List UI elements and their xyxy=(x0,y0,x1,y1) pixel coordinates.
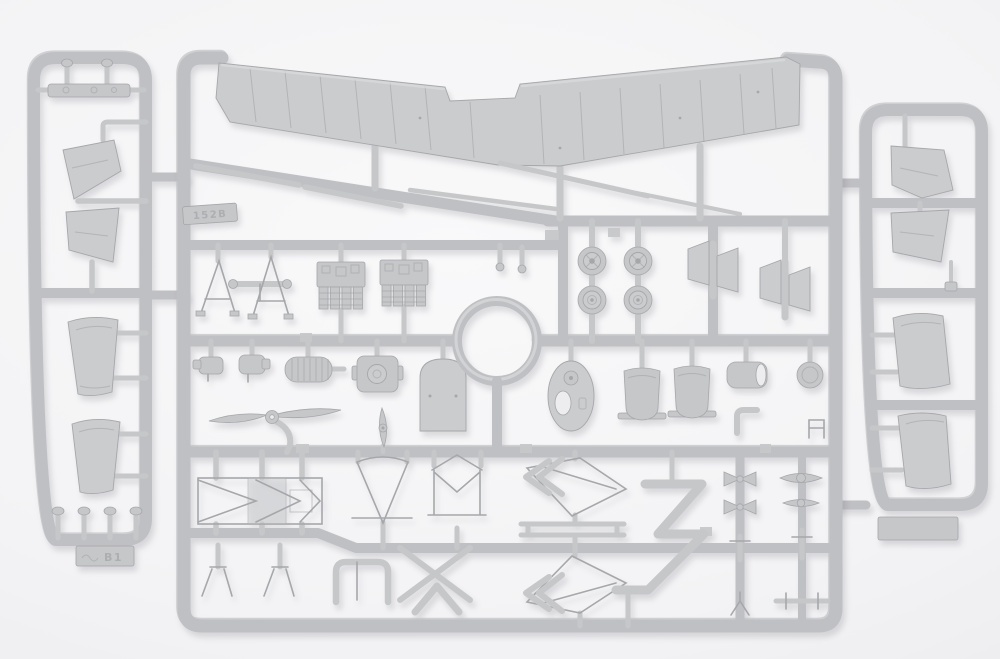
wing-hole xyxy=(757,91,760,94)
spoked-wheel xyxy=(578,221,606,288)
engine-cylinder-bank xyxy=(317,245,365,341)
main-sprue-marking-tab: 152B xyxy=(182,203,237,225)
wing-tip-section xyxy=(872,313,950,388)
mushroom-pin xyxy=(102,59,113,86)
right-sprue-blank-tab xyxy=(878,517,958,540)
bucket-seat xyxy=(618,341,666,420)
zigzag-exhaust-manifold xyxy=(616,452,704,626)
mushroom-pin xyxy=(62,59,73,86)
tail-fin-panel xyxy=(891,116,953,198)
control-horn-pin xyxy=(264,545,294,596)
wing-tip-section xyxy=(72,419,146,493)
gate-block xyxy=(300,333,312,342)
gate-block xyxy=(545,230,559,240)
ribbed-fuel-tank xyxy=(285,341,344,382)
t-bracket xyxy=(336,562,388,602)
strut-panel-set xyxy=(688,241,738,296)
right-sprue xyxy=(836,108,982,540)
triangular-frame xyxy=(352,452,412,548)
bucket-seat xyxy=(668,341,716,418)
carburetor-fitting xyxy=(193,341,223,381)
wing-hole xyxy=(419,117,422,120)
tail-fin-panel xyxy=(891,203,949,262)
exhaust-sleeve xyxy=(727,341,767,388)
fuselage-side-frame xyxy=(198,452,322,533)
wing-hole xyxy=(679,117,682,120)
left-tab-text: B1 xyxy=(104,551,123,564)
model-kit-sprues-photo: B1 xyxy=(0,0,1000,659)
landing-gear-vee-struts xyxy=(400,548,470,612)
gable-frame xyxy=(428,452,486,548)
hinge-bar-part xyxy=(38,84,144,97)
gate-block xyxy=(296,444,309,453)
gate-block xyxy=(760,444,771,453)
sprues-drawing: B1 xyxy=(0,0,1000,659)
mini-propeller-fitting xyxy=(780,474,822,483)
round-cap xyxy=(797,341,823,388)
cowling-ring xyxy=(456,300,537,453)
gate-block xyxy=(520,444,532,453)
carburetor-fitting xyxy=(239,341,270,382)
tail-skid-rod xyxy=(642,194,740,214)
wing-tip-section xyxy=(872,413,951,489)
spoked-wheel xyxy=(624,221,652,288)
disc-wheel xyxy=(578,286,606,341)
upper-wing-part xyxy=(216,57,800,218)
main-sprue: 152B xyxy=(182,56,836,626)
disc-wheel xyxy=(624,286,652,341)
mini-propeller-fitting xyxy=(783,499,819,507)
engine-crankcase xyxy=(352,341,403,392)
strut-panel-set xyxy=(760,221,810,317)
small-pin xyxy=(945,262,957,291)
strut-cross-bar xyxy=(229,280,292,302)
engine-cylinder-bank xyxy=(380,245,428,341)
small-clip xyxy=(809,420,824,438)
tail-fin-panel xyxy=(63,122,146,199)
gate-block xyxy=(700,527,712,536)
gate-block xyxy=(608,228,620,237)
fuselage-top-deck xyxy=(548,341,594,431)
control-horn-pin xyxy=(202,545,232,596)
wing-tip-section xyxy=(68,317,146,395)
kite-wing-frame xyxy=(526,452,626,524)
tail-fin-panel xyxy=(66,201,146,291)
elbow-pipe xyxy=(737,410,757,433)
spreader-bars xyxy=(521,524,624,535)
wing-hole xyxy=(559,147,562,150)
left-sprue-marking-tab: B1 xyxy=(76,546,134,566)
left-sprue: B1 xyxy=(33,56,184,566)
